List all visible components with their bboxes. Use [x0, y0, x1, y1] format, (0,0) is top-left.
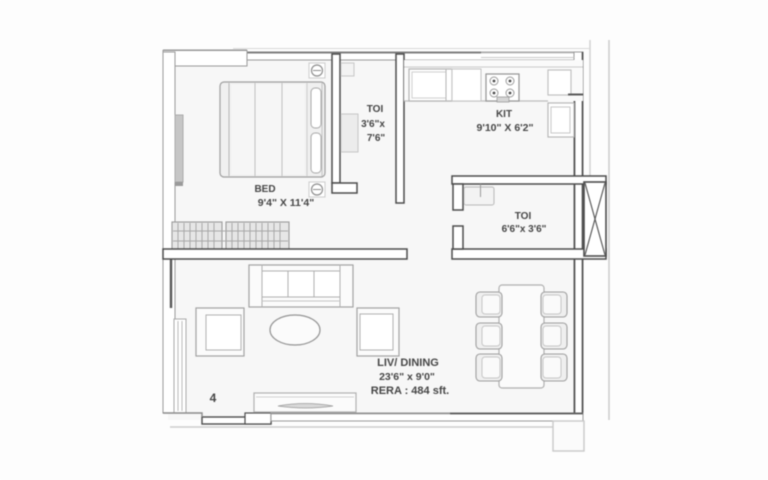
svg-text:KIT: KIT: [496, 109, 512, 120]
svg-text:9'4" X 11'4": 9'4" X 11'4": [258, 197, 314, 209]
svg-text:TOI: TOI: [515, 211, 532, 222]
svg-text:7'6": 7'6": [367, 133, 386, 144]
svg-text:6'6"x 3'6": 6'6"x 3'6": [502, 224, 547, 235]
svg-text:9'10" X 6'2": 9'10" X 6'2": [477, 122, 534, 134]
svg-text:LIV/ DINING: LIV/ DINING: [377, 357, 439, 369]
svg-text:23'6" x 9'0": 23'6" x 9'0": [379, 371, 435, 383]
svg-text:RERA : 484 sft.: RERA : 484 sft.: [371, 385, 449, 397]
svg-text:3'6"x: 3'6"x: [361, 119, 385, 130]
svg-text:BED: BED: [254, 184, 275, 195]
svg-text:4: 4: [210, 391, 217, 405]
svg-text:TOI: TOI: [367, 104, 384, 115]
